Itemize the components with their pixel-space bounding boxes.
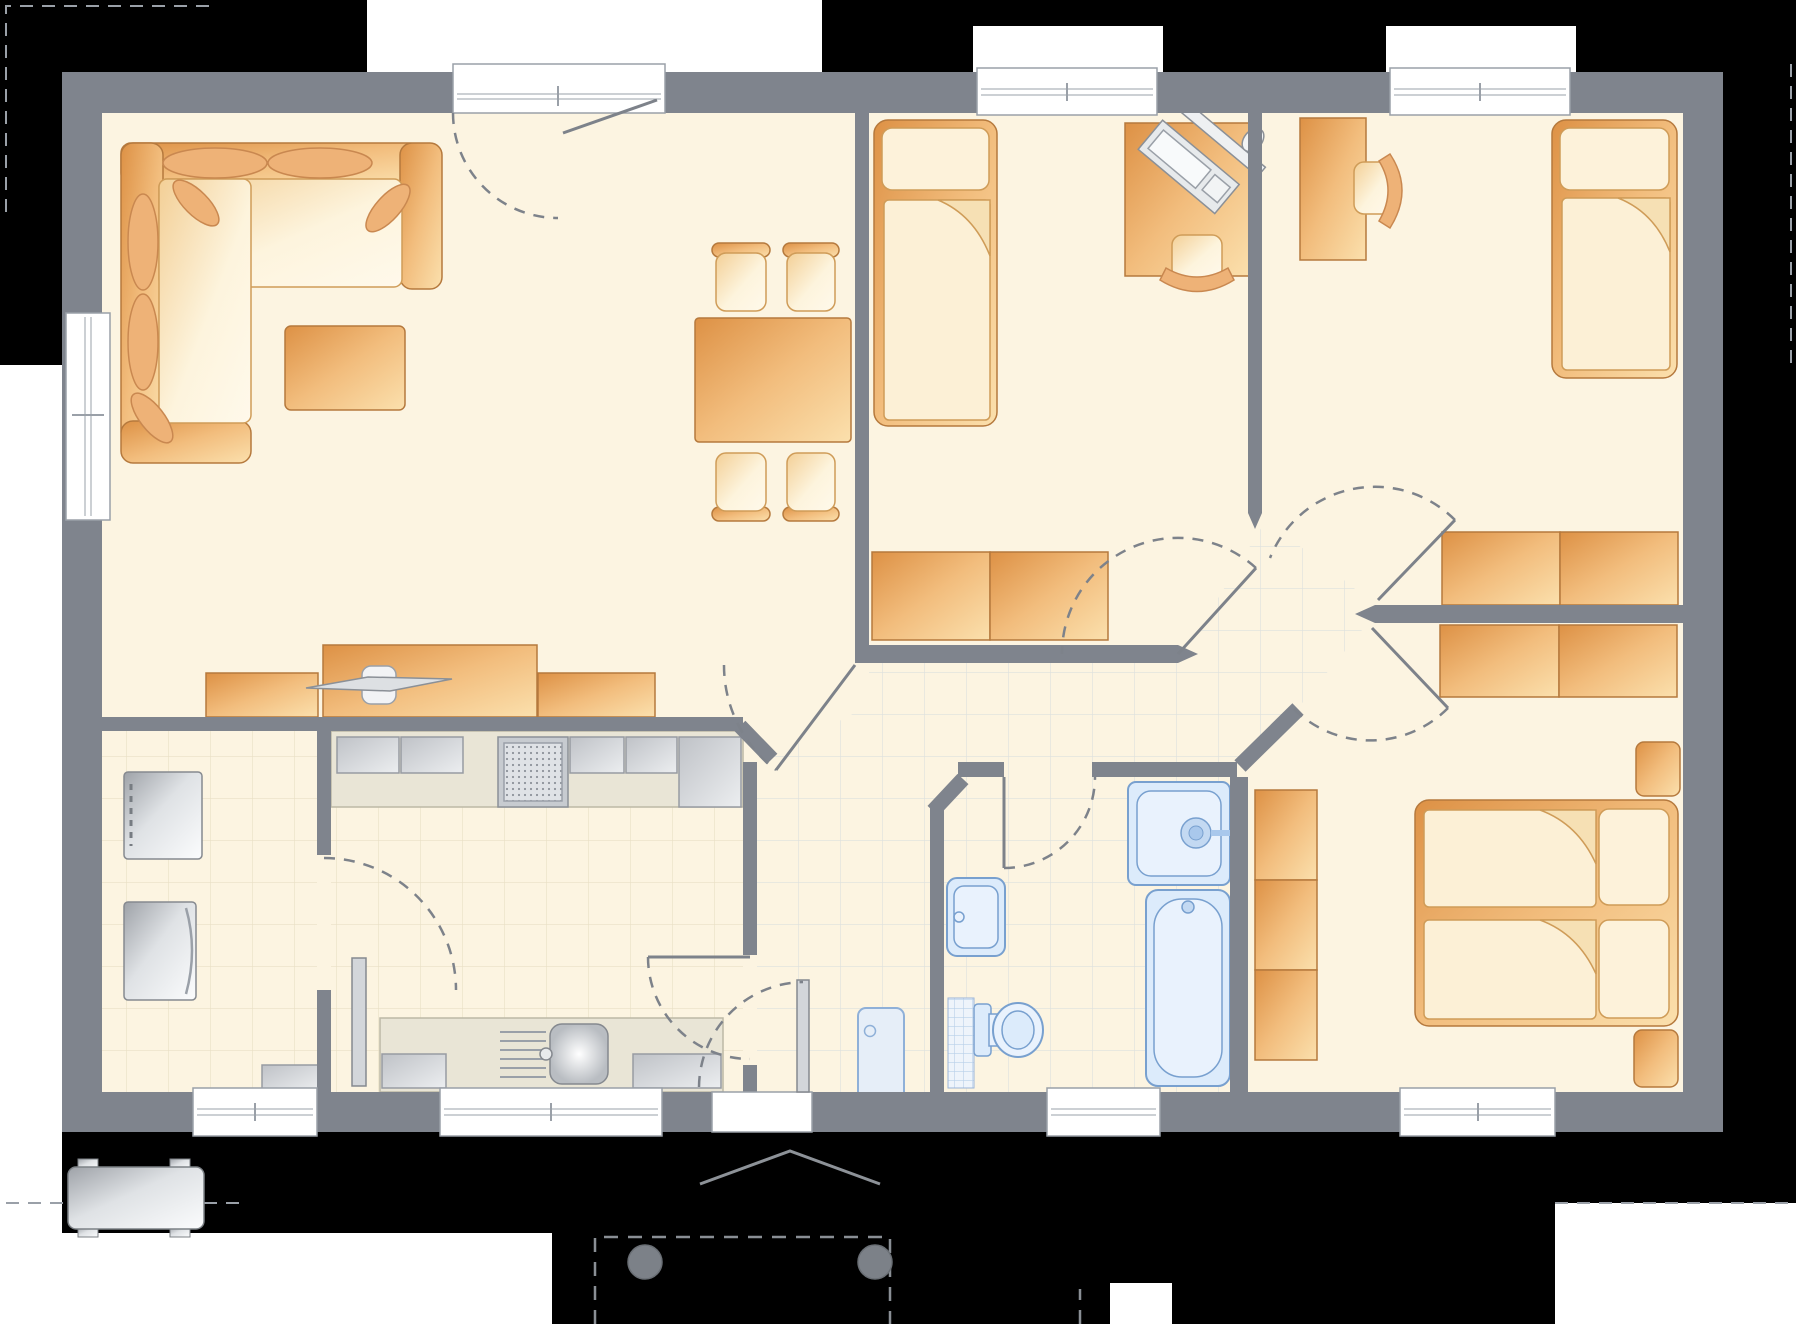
wardrobe-bedroom1-b (990, 552, 1108, 640)
kitchen-cabinet-6 (633, 1054, 721, 1088)
washing-machine (124, 772, 202, 859)
toilet-tile-wall (948, 998, 974, 1088)
kitchen-cabinet-2 (401, 737, 463, 773)
wardrobe-bedroom3-a (1255, 790, 1317, 880)
wall-bath-north-b (1092, 762, 1237, 777)
wall-utility-kitchen-b (317, 990, 331, 1092)
tv-board-left (206, 673, 318, 717)
porch-slab (552, 1133, 930, 1324)
wall-living-bedroom1 (855, 113, 869, 663)
wardrobe-bedroom3-b (1255, 880, 1317, 970)
bed3-pillow-2 (1599, 920, 1669, 1018)
sofa-cushion-4 (128, 294, 158, 390)
dining-stool-3 (716, 453, 766, 511)
fridge (679, 737, 741, 807)
sideboard-bedroom3-b (1559, 625, 1677, 697)
shower-drain-inner (1189, 826, 1203, 840)
wall-kitchen-hall-a (743, 762, 757, 955)
front-door-leaf (797, 980, 809, 1092)
sofa-cushion-3 (128, 194, 158, 290)
sofa-arm-bottom (121, 421, 251, 463)
kitchen-cabinet-1 (337, 737, 399, 773)
nightstand-bedroom3-b (1634, 1030, 1678, 1087)
outside-white-bottom-right (1555, 1203, 1796, 1324)
dining-table (695, 318, 851, 442)
chair-bedroom1-seat (1172, 235, 1222, 279)
outside-white-left (0, 365, 62, 1324)
tv-board-right (538, 673, 655, 717)
dining-stool-1 (716, 253, 766, 311)
sofa-cushion-1 (163, 148, 267, 178)
outside-white-above-window-bedroom1 (973, 26, 1163, 72)
sideboard-bedroom3-a (1440, 625, 1559, 697)
porch-column-2 (858, 1245, 892, 1279)
sofa-cushion-2 (268, 148, 372, 178)
tank-body (68, 1167, 204, 1229)
bathtub-faucet (1182, 901, 1194, 913)
porch-column-1 (628, 1245, 662, 1279)
bed3-pillow-1 (1599, 809, 1669, 905)
stove-top (504, 743, 562, 801)
nightstand-bedroom3-a (1636, 742, 1680, 796)
wall-utility-kitchen-a (317, 731, 331, 855)
coffee-table (285, 326, 405, 410)
wall-living-south (102, 717, 743, 731)
shoe-bench (262, 1065, 320, 1091)
outside-white-porch-patch (1110, 1283, 1172, 1324)
outside-white-above-window-bedroom2 (1386, 26, 1576, 72)
wall-hall-north (855, 645, 1178, 663)
wall-kitchen-hall-b (743, 1065, 757, 1092)
dining-stool-4 (787, 453, 835, 511)
front-door-opening (712, 1092, 812, 1132)
wall-bath-west (930, 807, 944, 1092)
wall-bath-east (1230, 777, 1248, 1092)
kitchen-sink (550, 1024, 608, 1084)
bathtub-inner (1154, 899, 1222, 1077)
bed2-pillow (1560, 128, 1669, 190)
wall-exterior-right (1683, 72, 1723, 1132)
bed1-blanket (884, 200, 990, 420)
wall-bedroom2-bedroom3 (1375, 605, 1683, 623)
wall-exterior-left (62, 72, 102, 1132)
washbasin-inner (954, 886, 998, 948)
kitchen-cabinet-4 (626, 737, 677, 773)
wall-bedroom1-bedroom2 (1248, 113, 1262, 513)
outside-white-bottom-left (0, 1233, 552, 1324)
kitchen-cabinet-5 (382, 1054, 446, 1088)
wardrobe-bedroom1-a (872, 552, 990, 640)
kitchen-cabinet-3 (570, 737, 624, 773)
floor-plan (0, 0, 1796, 1324)
sink-faucet (540, 1048, 552, 1060)
toilet-seat (1002, 1011, 1034, 1049)
outside-terrace-top (367, 0, 822, 72)
wardrobe-bedroom2-a (1442, 532, 1560, 605)
dining-stool-2 (787, 253, 835, 311)
window-bath (1047, 1088, 1160, 1136)
wardrobe-bedroom2-b (1560, 532, 1678, 605)
tall-cupboard (352, 958, 366, 1086)
bed1-pillow (882, 128, 989, 190)
sofa-arm-right (400, 143, 442, 289)
window-living-left (66, 313, 110, 520)
wardrobe-bedroom3-c (1255, 970, 1317, 1060)
floor-plan-svg (0, 0, 1796, 1324)
wall-bath-north-a (958, 762, 1004, 777)
dryer (124, 902, 196, 1000)
